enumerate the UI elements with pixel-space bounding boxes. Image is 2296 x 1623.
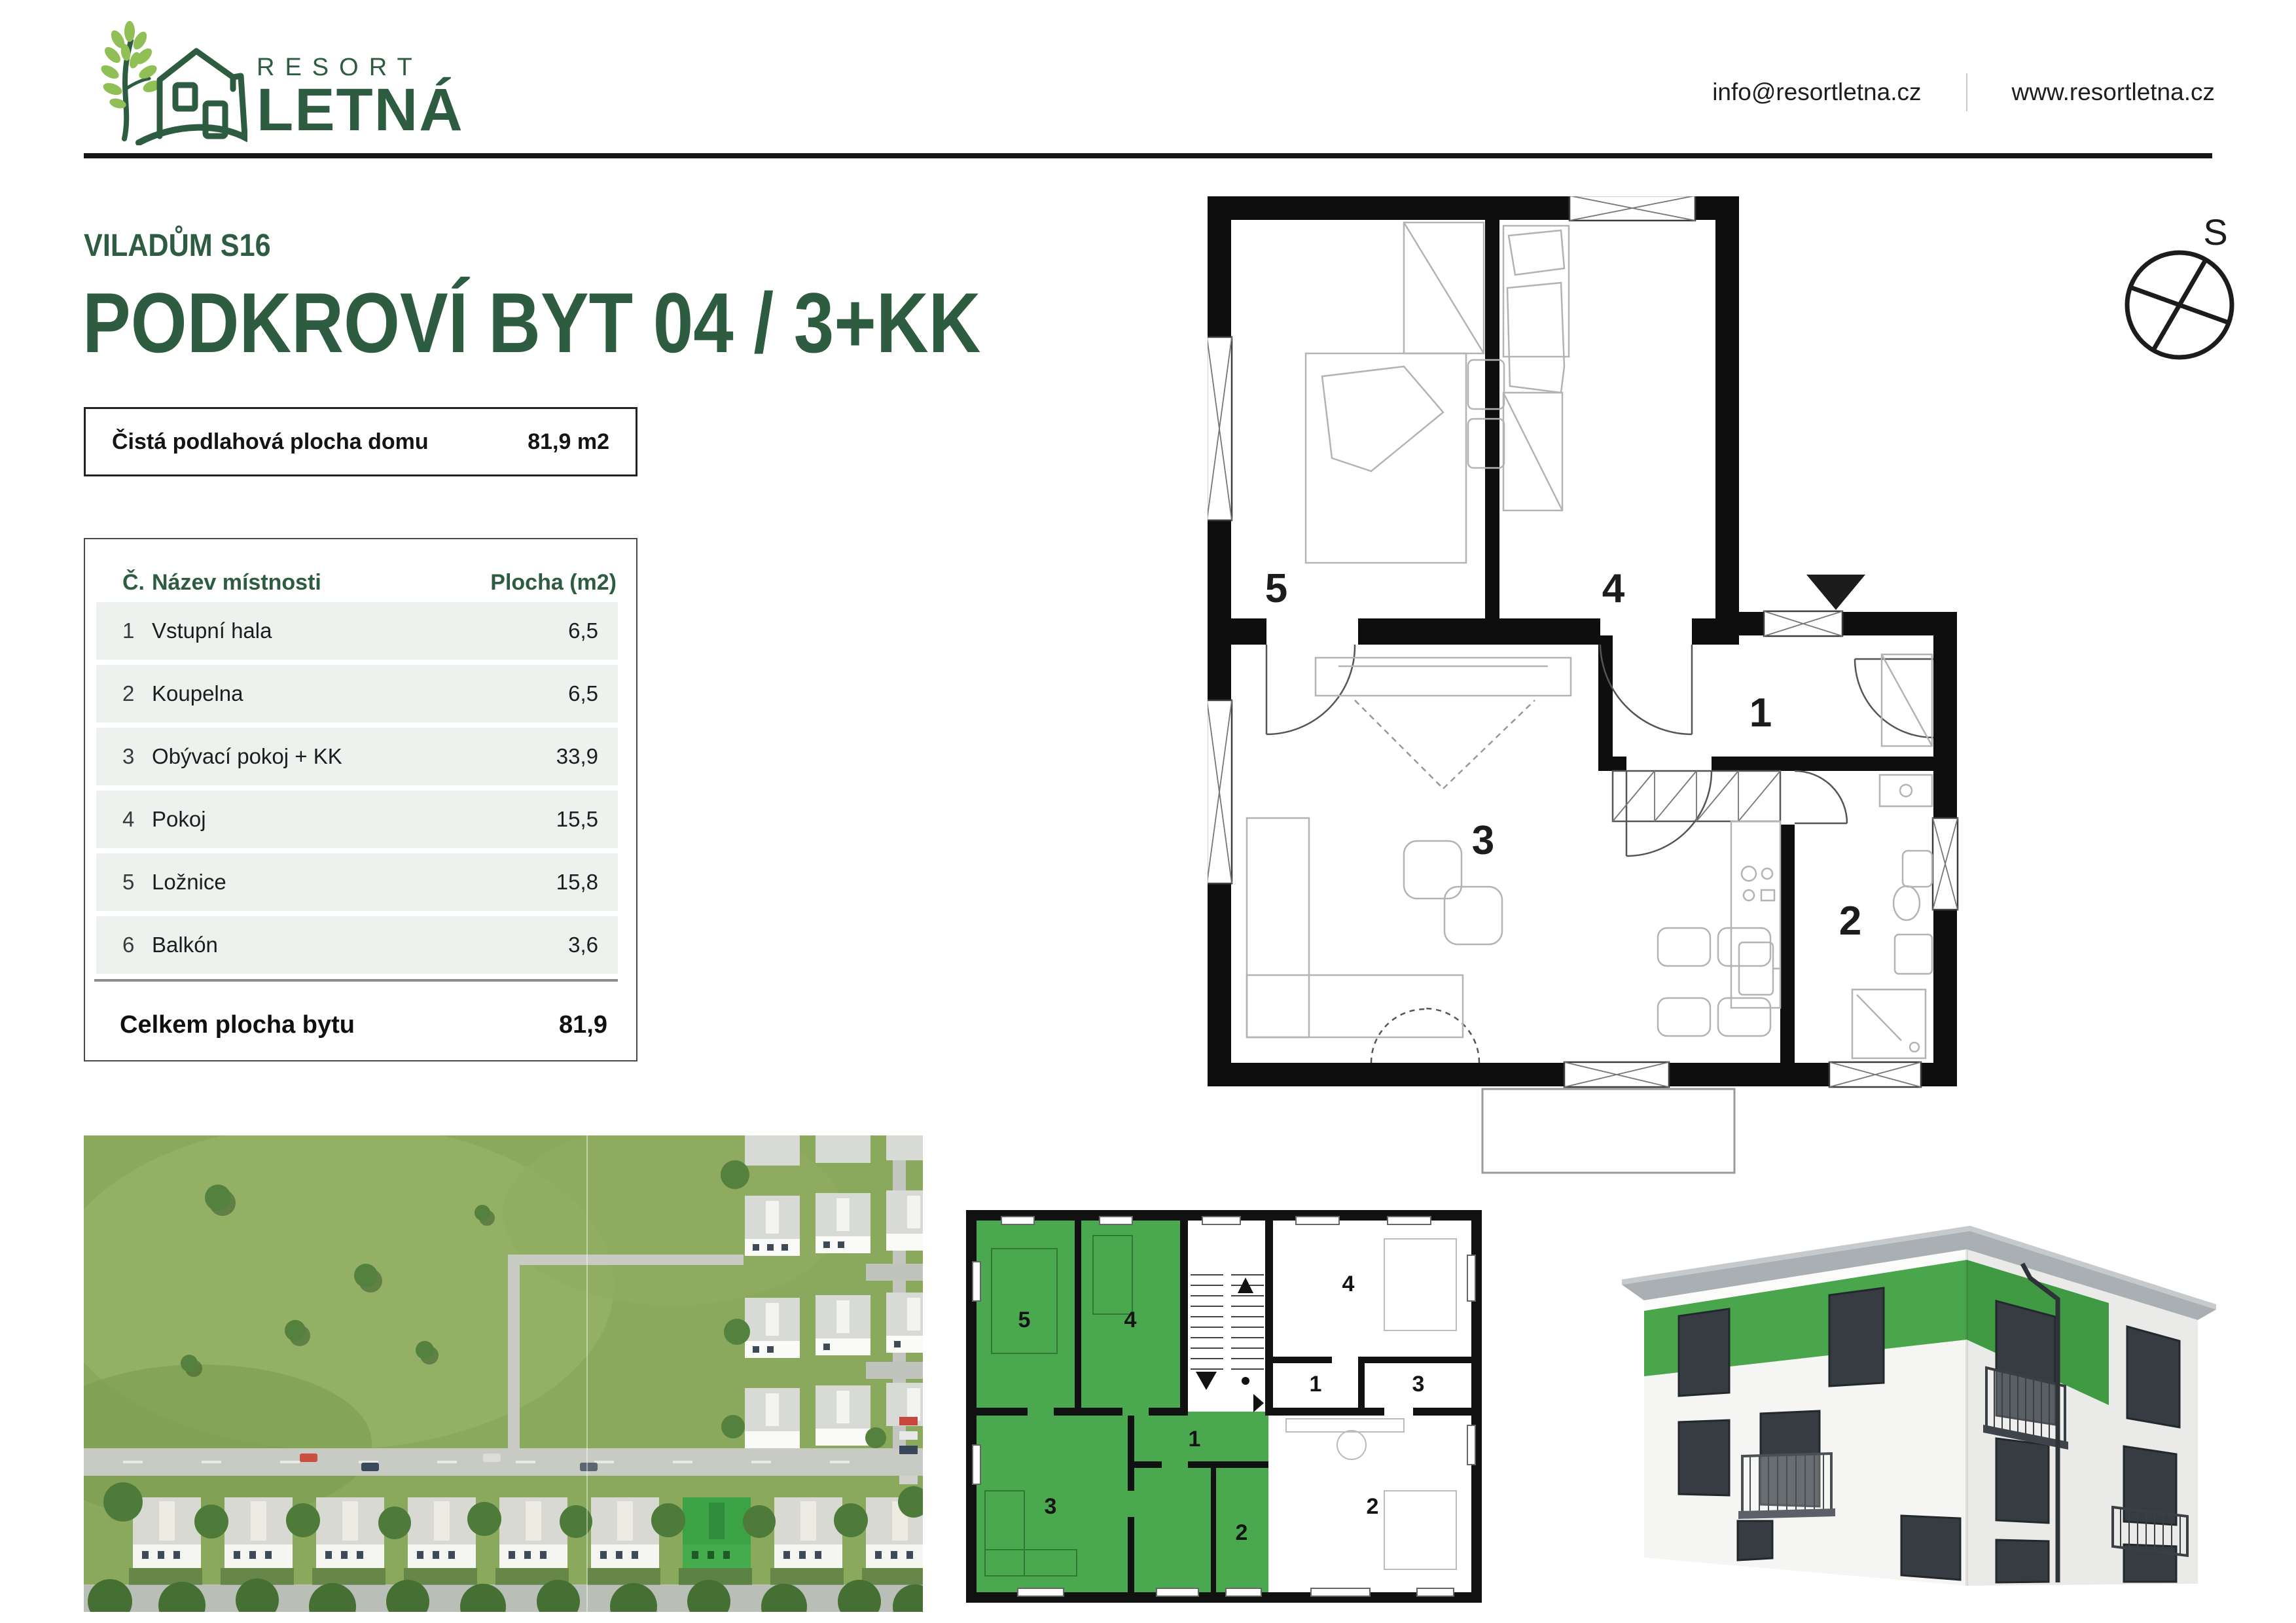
wardrobe-hatch [1613,771,1780,821]
logo-text: RESORT LETNÁ [257,54,464,145]
table-total-row: Celkem plocha bytu 81,9 [96,997,618,1052]
logo: RESORT LETNÁ [84,17,464,145]
label-room5: 5 [1265,566,1287,611]
table-row: 3 Obývací pokoj + KK 33,9 [96,728,618,785]
ov-right-3: 3 [1412,1372,1425,1397]
row-name: Koupelna [152,681,568,706]
ov-right-2: 2 [1367,1494,1379,1519]
kitchen-counter [1731,821,1780,1008]
row-area: 15,8 [556,870,598,895]
header-number: Č. [122,570,152,596]
row-name: Obývací pokoj + KK [152,744,556,769]
row-name: Ložnice [152,870,556,895]
logo-line2: LETNÁ [257,82,464,139]
page: RESORT LETNÁ info@resortletna.cz www.res… [0,0,2296,1623]
header-area: Plocha (m2) [490,570,617,596]
table-row: 2 Koupelna 6,5 [96,665,618,722]
row-number: 3 [122,744,152,769]
row-number: 5 [122,870,152,895]
contact-separator [1966,73,1967,111]
website-link[interactable]: www.resortletna.cz [2012,79,2215,106]
row-name: Vstupní hala [152,618,568,643]
row-number: 2 [122,681,152,706]
row-area: 15,5 [556,807,598,832]
total-value: 81,9 [559,1011,607,1039]
room-table: Č. Název místnosti Plocha (m2) 1 Vstupní… [84,538,637,1061]
row-area: 6,5 [568,681,598,706]
label-room4: 4 [1602,566,1625,611]
overview-floor-plan: 5 4 1 3 2 4 1 3 2 [965,1209,1482,1603]
ov-left-5: 5 [1018,1308,1031,1332]
ov-right-1: 1 [1310,1372,1322,1397]
room-table-rows: 1 Vstupní hala 6,5 2 Koupelna 6,5 3 Obýv… [96,602,618,979]
main-floor-plan: 5 4 1 3 2 [1208,196,1967,1178]
aerial-photo [84,1135,923,1612]
row-number: 4 [122,807,152,832]
row-area: 6,5 [568,618,598,643]
row-area: 33,9 [556,744,598,769]
row-name: Pokoj [152,807,556,832]
ov-left-1: 1 [1189,1427,1201,1452]
logo-icon [84,17,247,145]
room-table-header: Č. Název místnosti Plocha (m2) [85,563,636,602]
net-area-box: Čistá podlahová plocha domu 81,9 m2 [84,407,637,476]
building-subtitle: VILADŮM S16 [84,228,271,264]
net-area-value: 81,9 m2 [528,429,609,455]
highlighted-house [683,1497,751,1568]
row-number: 6 [122,933,152,957]
row-area: 3,6 [568,933,598,957]
entrance-arrow-icon [1806,575,1865,610]
label-room2: 2 [1839,899,1861,944]
header-name: Název místnosti [152,570,490,596]
bedroom-furniture [1306,223,1504,563]
house-row [129,1497,923,1585]
ov-left-2: 2 [1236,1520,1248,1545]
email-link[interactable]: info@resortletna.cz [1712,79,1921,106]
page-title: PODKROVÍ BYT 04 / 3+KK [82,280,980,365]
label-room1: 1 [1749,690,1772,736]
table-row: 4 Pokoj 15,5 [96,791,618,848]
room4-furniture [1503,226,1569,510]
balcony-left [1738,1454,1835,1519]
row-number: 1 [122,618,152,643]
row-name: Balkón [152,933,568,957]
ov-right-4: 4 [1342,1272,1355,1296]
net-area-label: Čistá podlahová plocha domu [112,429,429,455]
table-row: 6 Balkón 3,6 [96,916,618,974]
tree-leaves-icon [99,21,162,110]
house-icon [160,51,245,136]
label-room3: 3 [1472,818,1494,863]
bathroom-fixtures [1852,775,1932,1058]
table-divider [94,979,618,982]
projection-dashes [1355,700,1535,789]
total-label: Celkem plocha bytu [120,1011,355,1039]
header-contact: info@resortletna.cz www.resortletna.cz [1712,73,2215,111]
table-row: 5 Ložnice 15,8 [96,853,618,911]
compass-icon: S [2117,207,2242,364]
building-render [1604,1201,2235,1620]
ov-left-4: 4 [1124,1308,1137,1332]
ov-left-3: 3 [1045,1494,1057,1519]
header-divider [84,153,2212,158]
ground-swoosh-icon [139,128,247,143]
compass-label: S [2203,211,2227,253]
table-row: 1 Vstupní hala 6,5 [96,602,618,660]
